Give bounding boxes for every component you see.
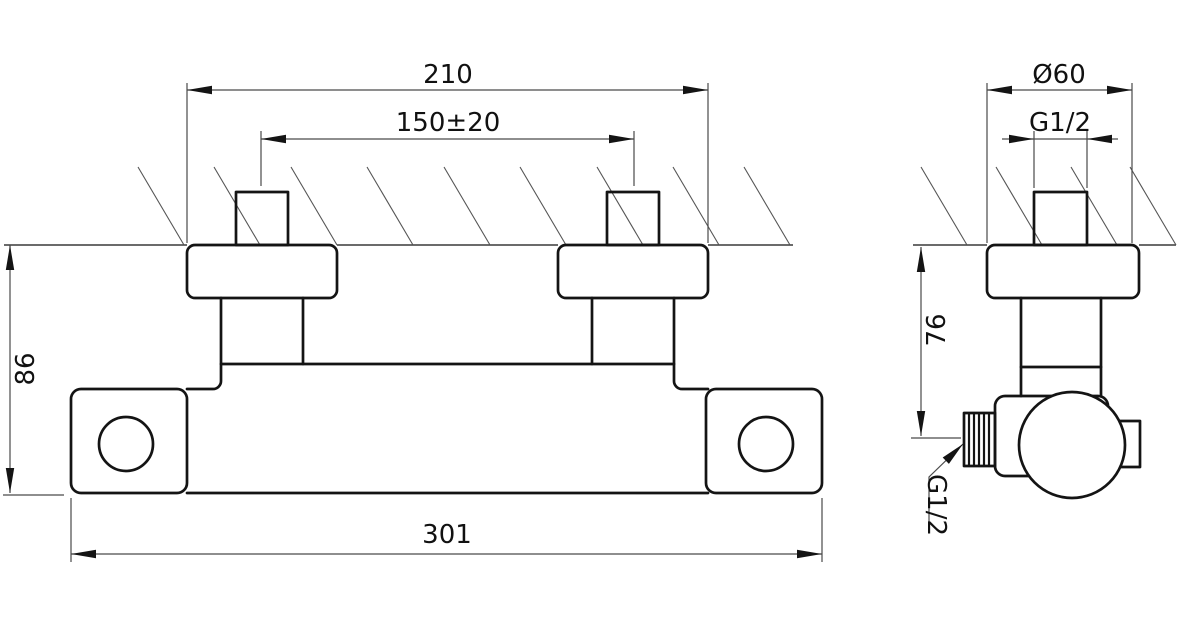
inlet-thread-dim-label: G1/2 — [1029, 108, 1091, 138]
end-cap-left — [71, 389, 187, 493]
outlet-thread-nipple — [964, 413, 995, 466]
escutcheon-left — [187, 245, 337, 298]
outlet-drop-dim-label: 76 — [922, 313, 952, 346]
wall-hatch-side — [921, 167, 1176, 245]
escutcheon-right — [558, 245, 708, 298]
front-width-dim-label: 210 — [423, 60, 473, 90]
front-view — [71, 192, 822, 493]
side-view — [964, 192, 1140, 498]
escutcheon-diameter-dim-label: Ø60 — [1032, 60, 1086, 90]
drawing-svg: 210 150±20 86 301 Ø60 G1/2 76 G1/2 — [0, 0, 1200, 630]
pipe-stub-right — [607, 192, 659, 245]
pipe-stub-side — [1034, 192, 1087, 245]
pipe-column — [1021, 298, 1101, 396]
inlet-centers-dim-label: 150±20 — [396, 108, 501, 138]
escutcheon-side — [987, 245, 1139, 298]
wall-section-front — [4, 167, 793, 245]
wall-section-side — [913, 167, 1176, 245]
outlet-thread-dim-label: G1/2 — [921, 474, 951, 536]
body-length-dim-label: 301 — [422, 520, 472, 550]
end-cap-right — [706, 389, 822, 493]
technical-drawing-canvas: 210 150±20 86 301 Ø60 G1/2 76 G1/2 — [0, 0, 1200, 630]
body-height-dim-label: 86 — [11, 352, 41, 385]
mixer-bar-outline — [187, 298, 708, 493]
handle-disc-side — [1019, 392, 1125, 498]
